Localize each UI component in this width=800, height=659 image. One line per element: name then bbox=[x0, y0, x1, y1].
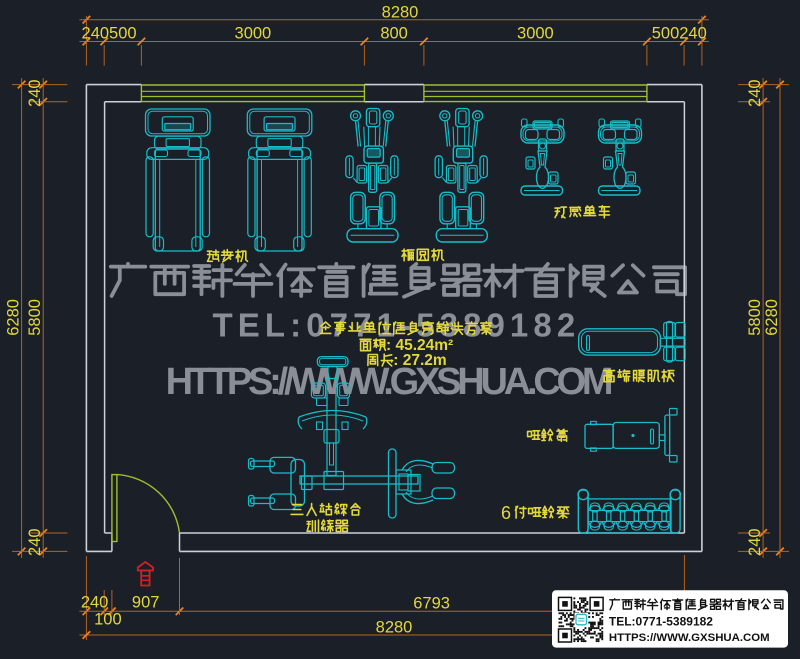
svg-text:6793: 6793 bbox=[413, 595, 450, 613]
svg-text:500: 500 bbox=[109, 24, 137, 42]
svg-text:6: 6 bbox=[501, 503, 511, 523]
svg-text:6280: 6280 bbox=[5, 299, 23, 336]
svg-text:240: 240 bbox=[26, 79, 44, 107]
svg-text:240: 240 bbox=[82, 24, 110, 42]
svg-text:8280: 8280 bbox=[376, 619, 413, 637]
svg-text:HTTPS://WWW.GXSHUA.COM: HTTPS://WWW.GXSHUA.COM bbox=[609, 632, 770, 644]
svg-text:5800: 5800 bbox=[746, 299, 764, 336]
svg-text:500: 500 bbox=[652, 24, 680, 42]
svg-text:3000: 3000 bbox=[517, 24, 554, 42]
svg-text:6280: 6280 bbox=[763, 299, 781, 336]
svg-text:240: 240 bbox=[746, 528, 764, 556]
svg-text:TEL:0771-5389182: TEL:0771-5389182 bbox=[609, 615, 713, 629]
svg-text:8280: 8280 bbox=[382, 4, 419, 22]
svg-text:100: 100 bbox=[94, 611, 122, 629]
svg-text:5800: 5800 bbox=[26, 299, 44, 336]
svg-text:240: 240 bbox=[746, 79, 764, 107]
svg-text:240: 240 bbox=[26, 528, 44, 556]
svg-text:907: 907 bbox=[132, 594, 160, 612]
svg-text:: 27.2m: : 27.2m bbox=[393, 352, 446, 369]
svg-text:240: 240 bbox=[81, 594, 109, 612]
svg-text:800: 800 bbox=[380, 24, 408, 42]
svg-text:3000: 3000 bbox=[235, 24, 272, 42]
svg-text:HTTPS://WWW.GXSHUA.COM: HTTPS://WWW.GXSHUA.COM bbox=[166, 361, 612, 403]
svg-text:240: 240 bbox=[679, 24, 707, 42]
